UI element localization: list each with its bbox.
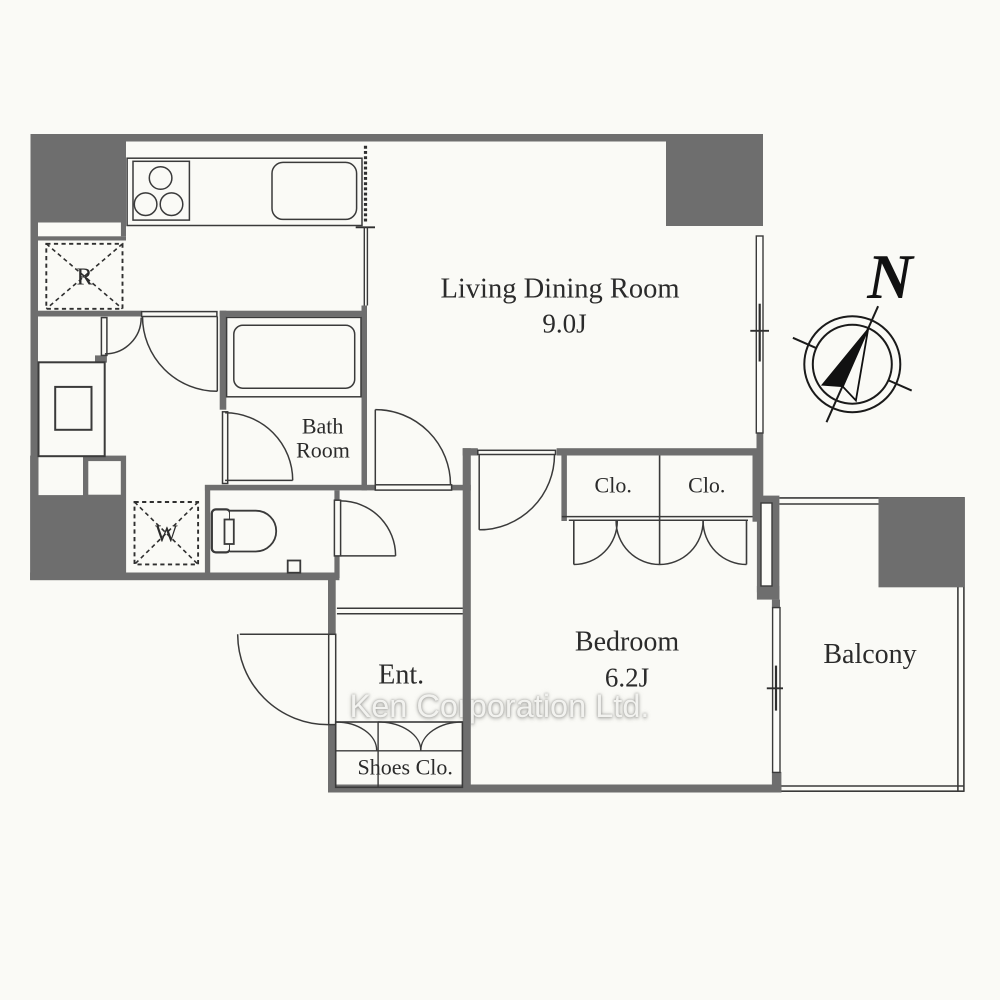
- svg-text:N: N: [866, 242, 915, 312]
- svg-text:Bedroom: Bedroom: [575, 627, 679, 658]
- svg-text:Room: Room: [296, 438, 350, 463]
- svg-text:9.0J: 9.0J: [542, 309, 586, 339]
- svg-text:Living Dining Room: Living Dining Room: [440, 274, 679, 305]
- svg-text:R: R: [76, 265, 92, 291]
- svg-text:W: W: [155, 522, 178, 548]
- svg-text:Bath: Bath: [302, 414, 344, 439]
- svg-text:Clo.: Clo.: [595, 472, 632, 497]
- svg-text:Clo.: Clo.: [688, 472, 725, 497]
- svg-text:Balcony: Balcony: [823, 639, 916, 670]
- svg-text:6.2J: 6.2J: [605, 663, 649, 693]
- svg-text:Shoes Clo.: Shoes Clo.: [358, 755, 453, 780]
- svg-text:Ent.: Ent.: [378, 660, 424, 691]
